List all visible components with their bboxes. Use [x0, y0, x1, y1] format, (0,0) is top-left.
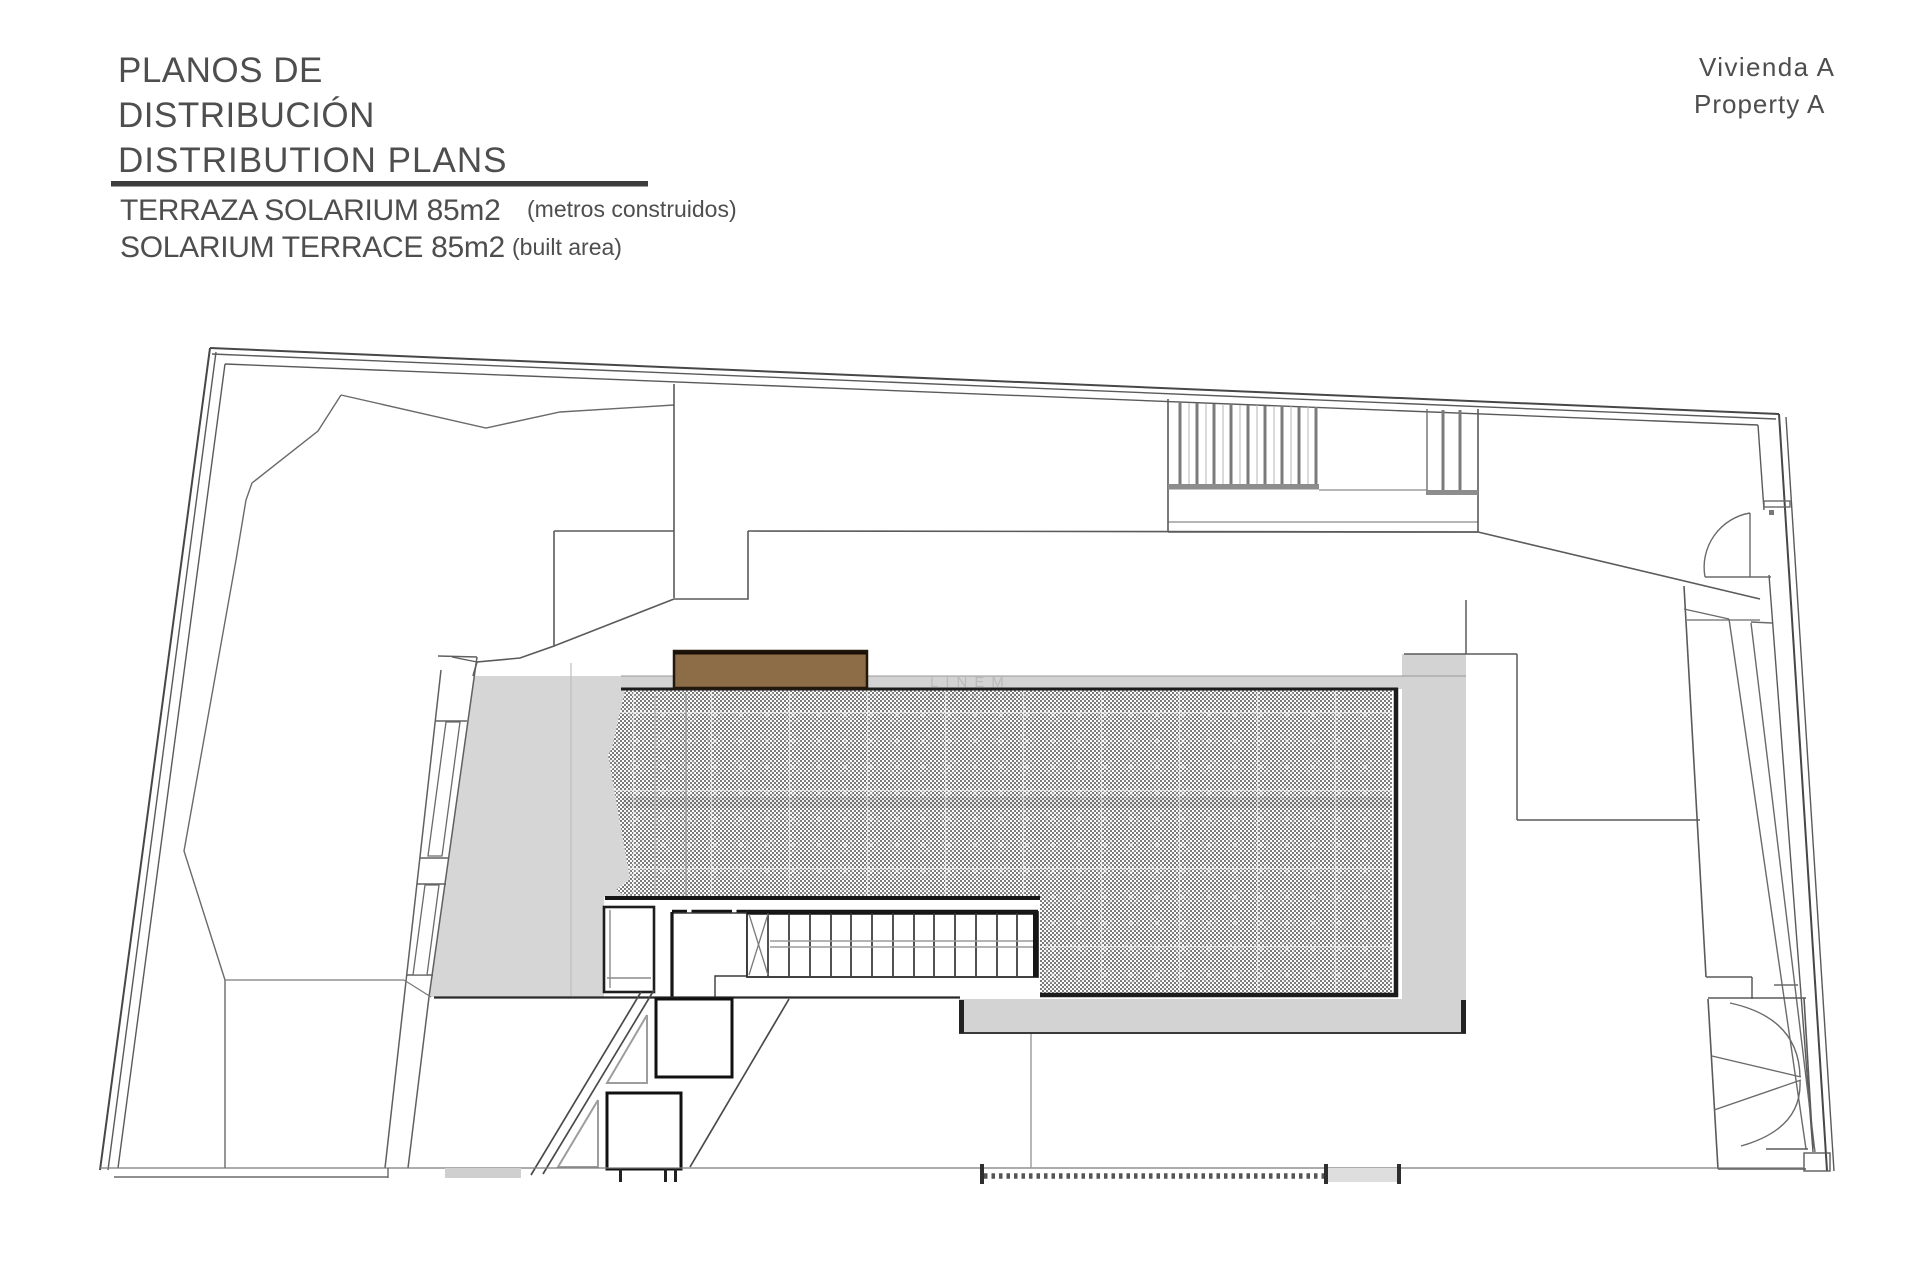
svg-text:SOLARIUM TERRACE 85m2: SOLARIUM TERRACE 85m2: [120, 231, 505, 264]
svg-text:TERRAZA SOLARIUM 85m2: TERRAZA SOLARIUM 85m2: [120, 194, 500, 227]
svg-text:DISTRIBUTION PLANS: DISTRIBUTION PLANS: [118, 141, 507, 180]
svg-text:(metros construidos): (metros construidos): [527, 196, 737, 222]
svg-text:DISTRIBUCIÓN: DISTRIBUCIÓN: [118, 96, 375, 135]
svg-text:Property A: Property A: [1694, 89, 1825, 119]
svg-text:PROPERTIES: PROPERTIES: [928, 692, 1031, 702]
svg-text:PLANOS DE: PLANOS DE: [118, 51, 323, 90]
svg-text:LINEM: LINEM: [930, 674, 1011, 691]
svg-text:(built area): (built area): [512, 234, 622, 260]
svg-text:Vivienda A: Vivienda A: [1699, 52, 1835, 82]
